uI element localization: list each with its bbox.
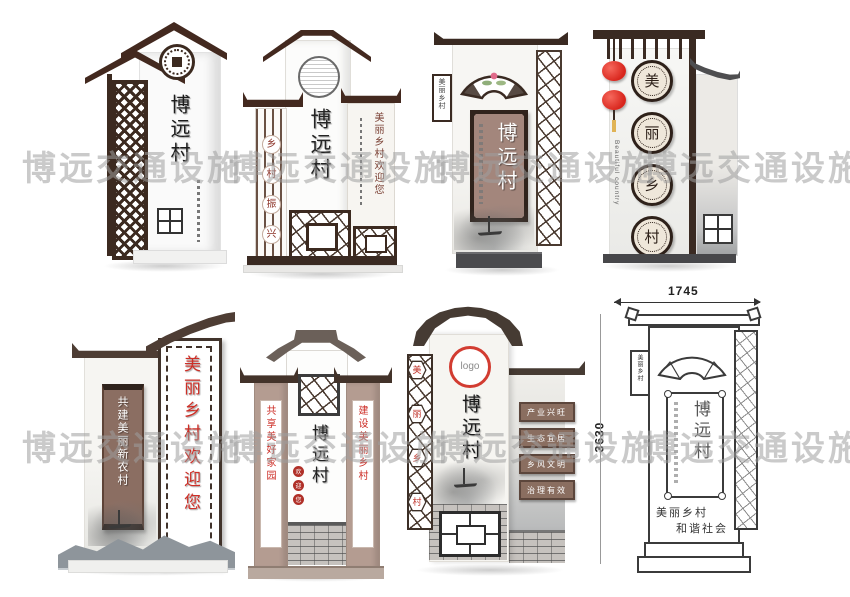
watermark-text: 博远交通设施 bbox=[436, 141, 658, 190]
eave-outline bbox=[628, 314, 760, 326]
lattice-window-icon bbox=[439, 511, 501, 557]
window-center bbox=[456, 525, 486, 545]
roof-slats-icon bbox=[607, 39, 691, 59]
right-brick-base bbox=[509, 530, 565, 563]
boat-mast bbox=[118, 510, 120, 525]
right-eave-icon bbox=[501, 361, 585, 375]
lantern-icon bbox=[602, 61, 626, 81]
corner-dot bbox=[718, 390, 726, 398]
watermark-text: 博远交通设施 bbox=[229, 421, 451, 470]
boat-hull-icon bbox=[109, 524, 131, 529]
base-plinth bbox=[243, 265, 403, 273]
hex-char: 丽 bbox=[409, 406, 426, 423]
village-signage-showcase: 博远村 博远村 乡 村 振 兴 美丽乡村欢迎您 bbox=[0, 0, 850, 597]
medallion-icon bbox=[159, 44, 195, 80]
brick-base bbox=[429, 504, 507, 560]
medallion-char: 村 bbox=[634, 219, 670, 255]
medallion: 美 bbox=[631, 60, 673, 102]
red-seal: 您 bbox=[293, 494, 304, 505]
lantern-icon bbox=[602, 90, 626, 110]
flat-roof-beam-icon bbox=[593, 30, 705, 39]
wayfinding-board: 治理有效 bbox=[519, 480, 575, 500]
window-center bbox=[365, 235, 387, 253]
slogan-circle: 兴 bbox=[262, 225, 281, 244]
watermark-text: 博远交通设施 bbox=[643, 141, 850, 190]
fan-outline-icon bbox=[656, 334, 728, 380]
base-plinth bbox=[248, 566, 384, 579]
slogan-circle: 振 bbox=[262, 195, 281, 214]
logo-badge: logo bbox=[449, 346, 491, 388]
window-center bbox=[306, 223, 338, 251]
red-seal: 迎 bbox=[293, 480, 304, 491]
boat-hull-icon bbox=[478, 231, 502, 236]
corner-dot bbox=[470, 110, 476, 116]
small-lattice-window-icon bbox=[703, 214, 733, 244]
dimension-line bbox=[614, 302, 760, 303]
side-tab-outline: 美丽乡村 bbox=[630, 350, 650, 396]
plinth-outline bbox=[637, 556, 751, 573]
ink-painting bbox=[454, 202, 534, 250]
watermark-text: 博远交通设施 bbox=[22, 421, 244, 470]
watermark-text: 博远交通设施 bbox=[229, 141, 451, 190]
hex-char: 美 bbox=[409, 362, 426, 379]
top-eave-icon bbox=[434, 32, 568, 45]
brick-base bbox=[286, 522, 346, 565]
base-beam bbox=[603, 254, 736, 263]
medallion: 村 bbox=[631, 216, 673, 258]
dim-arrow-icon bbox=[754, 298, 765, 306]
fan-frame-icon bbox=[460, 54, 528, 100]
side-tab-text: 美丽乡村 bbox=[437, 78, 447, 110]
boat-hull-icon bbox=[454, 483, 477, 488]
stone-base bbox=[456, 252, 542, 268]
quatrefoil-window-icon bbox=[298, 56, 340, 98]
side-tab: 美丽乡村 bbox=[432, 74, 452, 122]
wayfinding-board: 产业兴旺 bbox=[519, 402, 575, 422]
medallion-char: 美 bbox=[634, 63, 670, 99]
dim-arrow-icon bbox=[610, 298, 621, 306]
watermark-text: 博远交通设施 bbox=[22, 141, 244, 190]
ground-shadow bbox=[415, 564, 565, 576]
boat-mast bbox=[463, 468, 465, 484]
lattice-window-icon bbox=[298, 374, 340, 416]
corner-dot bbox=[718, 492, 726, 500]
base-plinth bbox=[68, 560, 228, 573]
base-beam bbox=[247, 256, 397, 265]
side-tab-text: 美丽乡村 bbox=[636, 354, 644, 382]
caption-line: 美丽乡村 bbox=[656, 504, 708, 520]
caption-line: 和谐社会 bbox=[676, 520, 728, 536]
corner-dot bbox=[664, 390, 672, 398]
corner-dot bbox=[522, 110, 528, 116]
medallion-center bbox=[172, 57, 182, 67]
hex-char: 村 bbox=[409, 494, 426, 511]
lattice-window-icon bbox=[289, 210, 351, 262]
watermark-text: 博远交通设施 bbox=[643, 421, 850, 470]
base-plinth bbox=[133, 250, 227, 264]
lantern-cord bbox=[613, 110, 615, 120]
lantern-string bbox=[613, 39, 615, 61]
window-lattice-icon bbox=[157, 208, 183, 234]
ink-painting bbox=[88, 498, 156, 546]
watermark-text: 博远交通设施 bbox=[436, 421, 658, 470]
corner-dot bbox=[664, 492, 672, 500]
boat-mast bbox=[488, 216, 490, 232]
lantern-tassel-icon bbox=[612, 120, 616, 132]
width-dimension: 1745 bbox=[668, 284, 699, 298]
